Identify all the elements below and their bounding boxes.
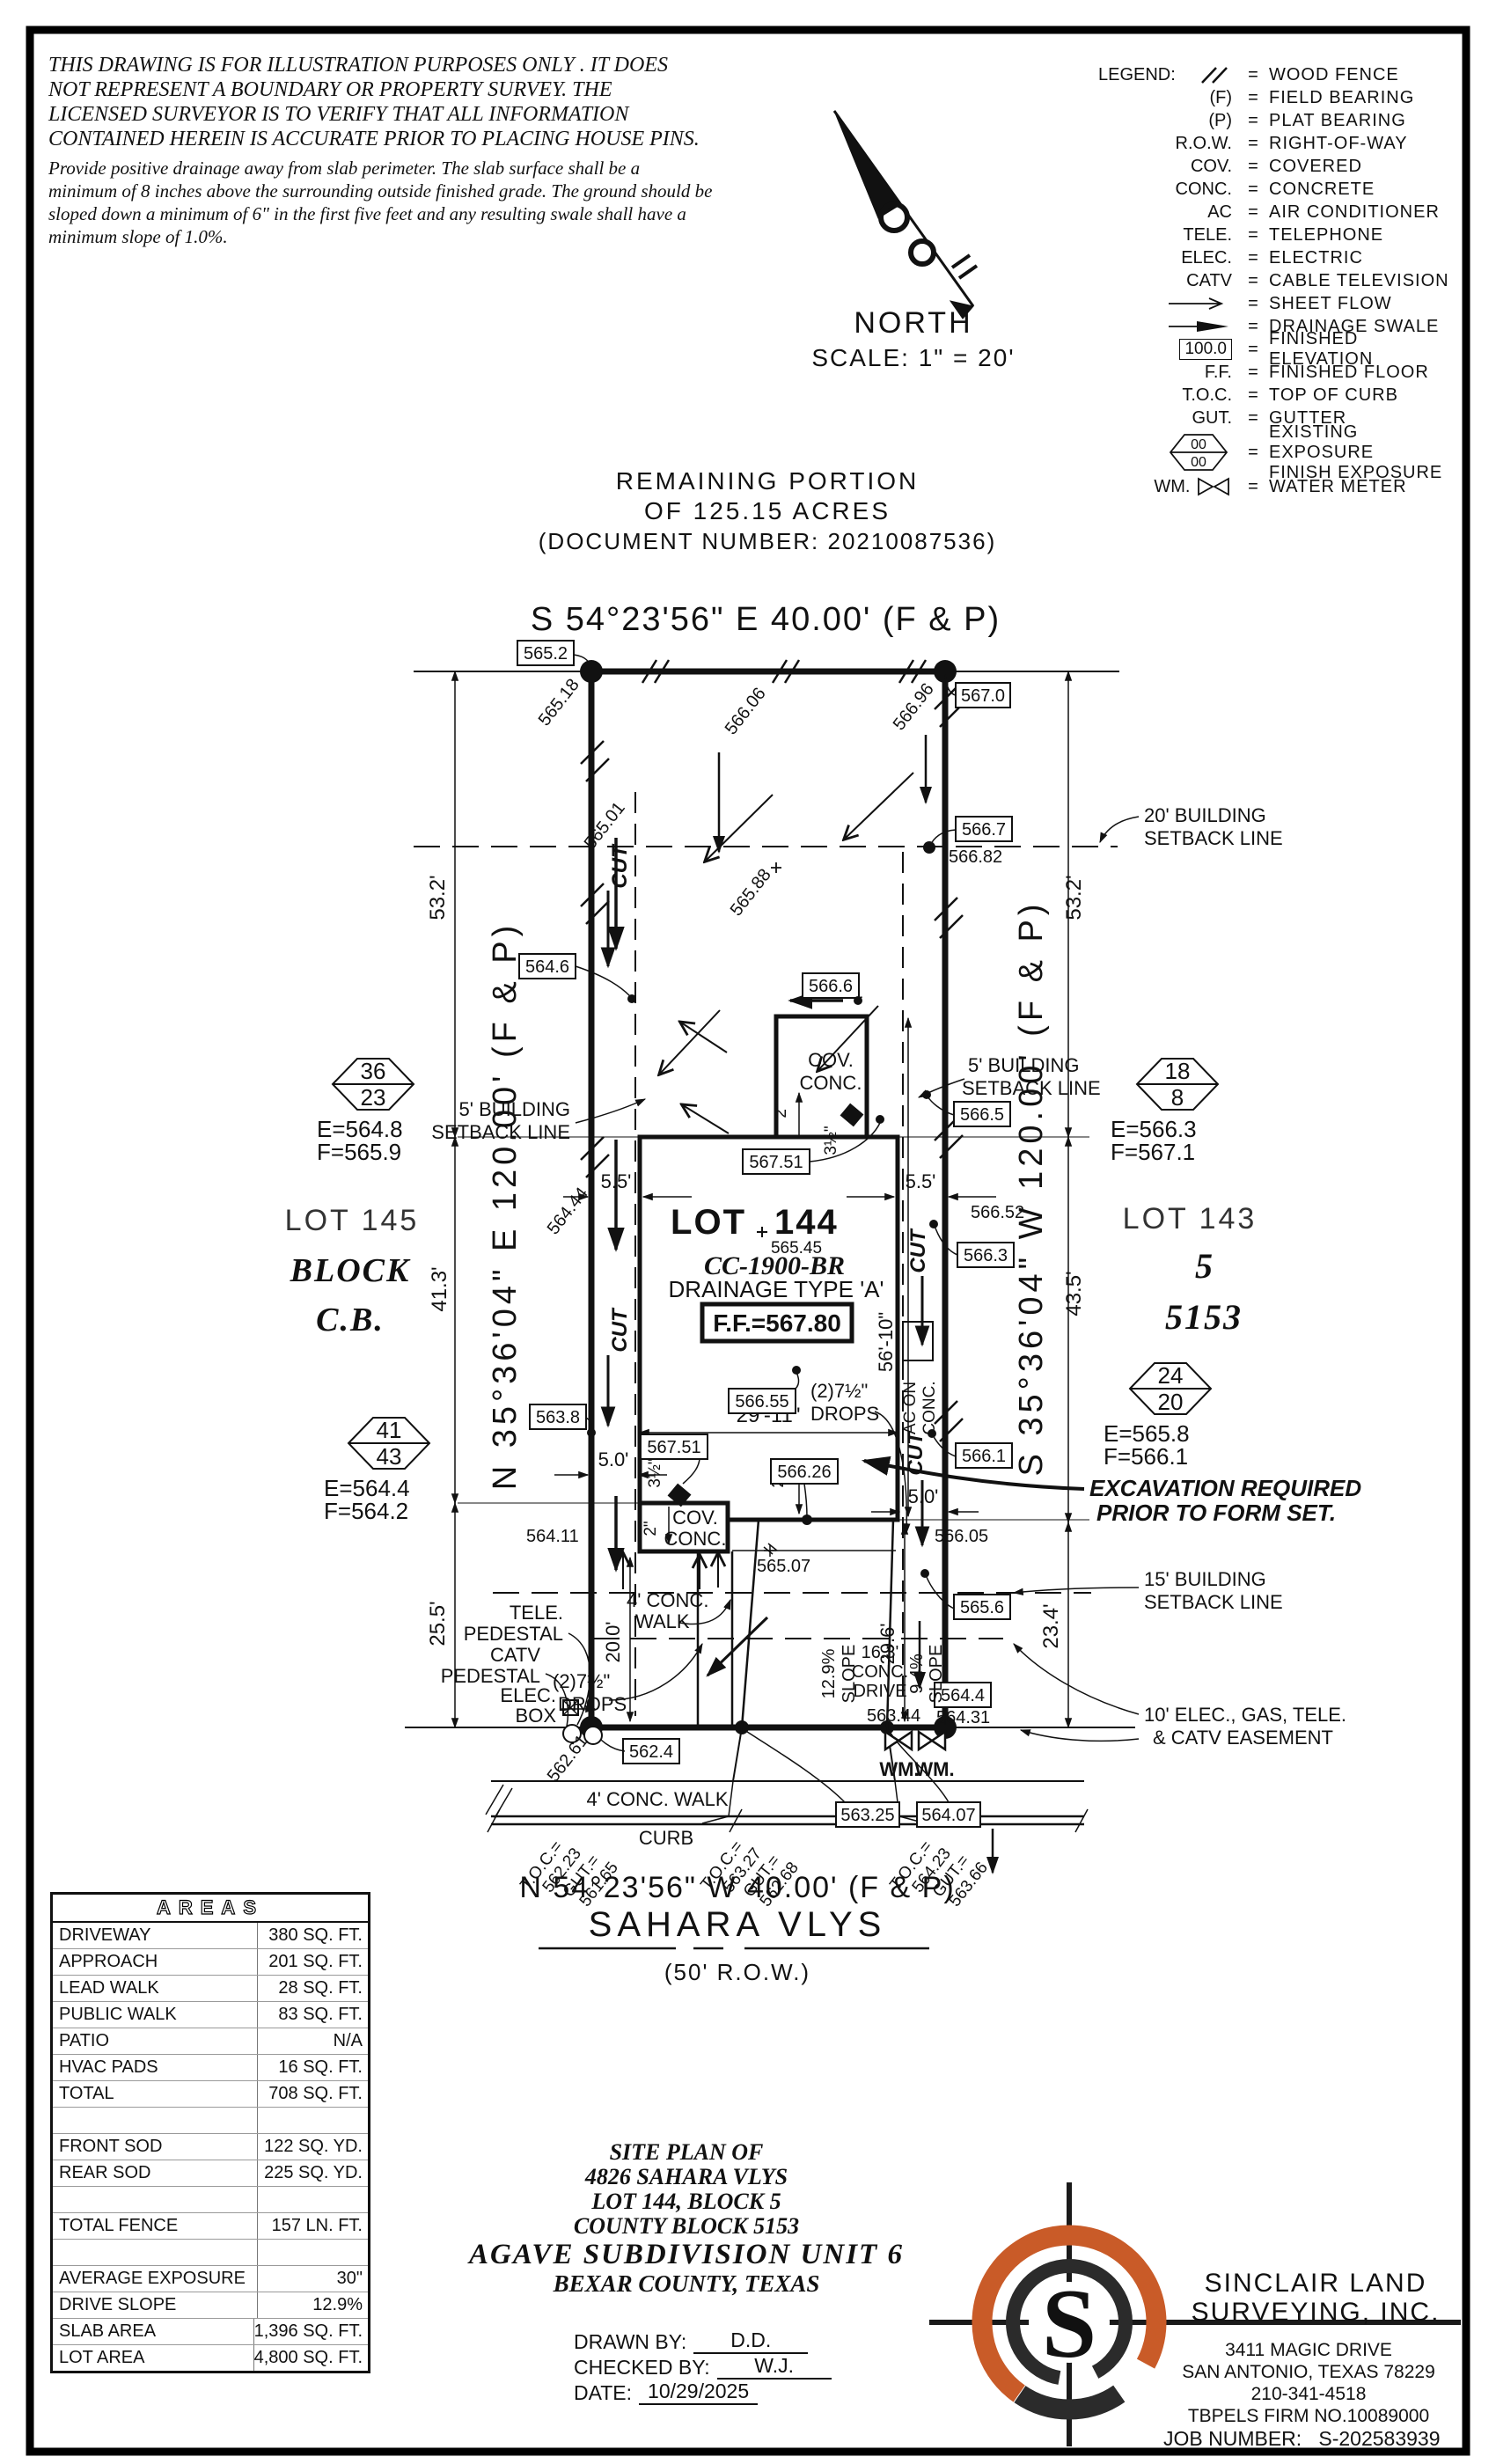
svg-text:5153: 5153 bbox=[1165, 1297, 1243, 1337]
svg-text:20: 20 bbox=[1158, 1389, 1184, 1415]
drainage-note-line: sloped down a minimum of 6" in the first… bbox=[48, 202, 761, 225]
svg-text:565.01: 565.01 bbox=[581, 798, 629, 853]
svg-text:00: 00 bbox=[1191, 455, 1206, 470]
water-meter-icon bbox=[1195, 477, 1232, 496]
svg-text:SLOPE: SLOPE bbox=[927, 1645, 946, 1704]
bearing-left: N 35°36'04" E 120.00' (F & P) bbox=[487, 921, 524, 1491]
county-line: BEXAR COUNTY, TEXAS bbox=[370, 2270, 1003, 2297]
svg-text:LOT: LOT bbox=[671, 1203, 746, 1242]
svg-text:(2)7½": (2)7½" bbox=[553, 1670, 610, 1692]
svg-text:SETBACK LINE: SETBACK LINE bbox=[1144, 1591, 1283, 1613]
areas-table-row: PUBLIC WALK 83 SQ. FT. bbox=[53, 2002, 368, 2028]
north-arrow-icon bbox=[834, 111, 977, 319]
areas-table-row: TOTAL FENCE 157 LN. FT. bbox=[53, 2213, 368, 2240]
date-label: DATE: bbox=[574, 2381, 632, 2405]
svg-text:F=564.2: F=564.2 bbox=[324, 1498, 408, 1524]
svg-text:565.88: 565.88 bbox=[727, 865, 775, 920]
svg-text:53.2': 53.2' bbox=[1062, 875, 1086, 920]
svg-text:564.07: 564.07 bbox=[921, 1806, 975, 1825]
firm-name: SINCLAIR LAND SURVEYING, INC. bbox=[1179, 2269, 1452, 2327]
svg-text:CUT: CUT bbox=[608, 1307, 632, 1353]
svg-text:567.51: 567.51 bbox=[647, 1438, 700, 1457]
svg-text:566.05: 566.05 bbox=[935, 1527, 988, 1546]
svg-text:00: 00 bbox=[1191, 437, 1206, 452]
svg-text:25.5': 25.5' bbox=[426, 1601, 450, 1646]
svg-text:& CATV EASEMENT: & CATV EASEMENT bbox=[1153, 1727, 1333, 1749]
areas-table-row: APPROACH 201 SQ. FT. bbox=[53, 1949, 368, 1976]
svg-text:566.26: 566.26 bbox=[777, 1463, 831, 1482]
checked-by-label: CHECKED BY: bbox=[574, 2356, 710, 2380]
svg-text:5.0': 5.0' bbox=[598, 1448, 629, 1470]
svg-text:ELEC.: ELEC. bbox=[500, 1684, 556, 1706]
svg-text:564.44: 564.44 bbox=[544, 1184, 592, 1238]
svg-text:565.2: 565.2 bbox=[524, 644, 568, 664]
drainage-note-line: Provide positive drainage away from slab… bbox=[48, 157, 761, 180]
svg-text:565.07: 565.07 bbox=[757, 1557, 810, 1576]
svg-text:16.3': 16.3' bbox=[862, 1643, 899, 1662]
svg-text:564.4: 564.4 bbox=[941, 1686, 985, 1705]
svg-text:566.96: 566.96 bbox=[890, 679, 938, 734]
excavation-note: EXCAVATION REQUIRED PRIOR TO FORM SET. bbox=[864, 1461, 1361, 1526]
disclaimer-line: LICENSED SURVEYOR IS TO VERIFY THAT ALL … bbox=[48, 102, 761, 127]
svg-text:AC ON: AC ON bbox=[901, 1382, 920, 1434]
title-line: 4826 SAHARA VLYS bbox=[370, 2165, 1003, 2189]
svg-text:10' ELEC., GAS, TELE.: 10' ELEC., GAS, TELE. bbox=[1144, 1704, 1346, 1726]
svg-text:WM.: WM. bbox=[879, 1758, 919, 1780]
svg-text:LOT 143: LOT 143 bbox=[1123, 1202, 1258, 1236]
areas-table-row: AVERAGE EXPOSURE 30" bbox=[53, 2266, 368, 2292]
areas-table-title: AREAS bbox=[53, 1895, 368, 1923]
svg-text:CONC.: CONC. bbox=[800, 1072, 862, 1094]
svg-text:PEDESTAL: PEDESTAL bbox=[464, 1623, 563, 1645]
legend: LEGEND: = WOOD FENCE (F)=FIELD BEARING (… bbox=[1098, 63, 1468, 498]
svg-text:4' CONC. WALK: 4' CONC. WALK bbox=[586, 1788, 728, 1810]
checked-by-value: W.J. bbox=[717, 2354, 832, 2380]
bearing-right: S 35°36'04" W 120.00' (F & P) bbox=[1013, 900, 1050, 1477]
svg-text:144: 144 bbox=[774, 1203, 839, 1242]
svg-text:565.6: 565.6 bbox=[960, 1598, 1004, 1617]
svg-text:SETBACK LINE: SETBACK LINE bbox=[962, 1077, 1101, 1099]
firm-city: SAN ANTONIO, TEXAS 78229 bbox=[1163, 2361, 1454, 2383]
svg-text:5' BUILDING: 5' BUILDING bbox=[968, 1054, 1079, 1076]
svg-text:566.5: 566.5 bbox=[960, 1105, 1004, 1125]
svg-text:DRIVE: DRIVE bbox=[853, 1682, 906, 1701]
svg-text:LOT 145: LOT 145 bbox=[285, 1204, 420, 1237]
areas-table-row: HVAC PADS 16 SQ. FT. bbox=[53, 2055, 368, 2081]
job-number: JOB NUMBER: S-202583939 bbox=[1163, 2427, 1463, 2451]
svg-text:COV.: COV. bbox=[672, 1507, 718, 1529]
remaining-portion-line1: REMAINING PORTION bbox=[616, 467, 920, 495]
svg-text:563.25: 563.25 bbox=[840, 1806, 894, 1825]
title-line: COUNTY BLOCK 5153 bbox=[370, 2214, 1003, 2239]
svg-text:3½": 3½" bbox=[822, 1126, 840, 1155]
areas-table-row: TOTAL 708 SQ. FT. bbox=[53, 2081, 368, 2108]
lot-144-labels: LOT 144 565.45 CC-1900-BR DRAINAGE TYPE … bbox=[669, 1203, 884, 1302]
svg-text:F.F.=567.80: F.F.=567.80 bbox=[713, 1309, 841, 1337]
svg-text:5.5': 5.5' bbox=[906, 1170, 936, 1192]
svg-text:564.6: 564.6 bbox=[525, 957, 569, 977]
svg-text:CATV: CATV bbox=[490, 1644, 540, 1666]
svg-text:CONC.: CONC. bbox=[920, 1381, 939, 1434]
finished-floor-box: F.F.=567.80 bbox=[702, 1304, 852, 1341]
firm-street: 3411 MAGIC DRIVE bbox=[1163, 2339, 1454, 2361]
svg-text:BLOCK: BLOCK bbox=[290, 1252, 411, 1289]
street-name: SAHARA VLYS bbox=[589, 1905, 887, 1944]
date-value: 10/29/2025 bbox=[639, 2380, 758, 2405]
title-line: LOT 144, BLOCK 5 bbox=[370, 2189, 1003, 2214]
svg-text:20' BUILDING: 20' BUILDING bbox=[1144, 804, 1266, 826]
svg-text:562.4: 562.4 bbox=[629, 1742, 673, 1762]
svg-text:566.7: 566.7 bbox=[962, 820, 1006, 840]
svg-text:SETBACK LINE: SETBACK LINE bbox=[431, 1121, 570, 1143]
svg-text:BOX: BOX bbox=[516, 1705, 557, 1727]
scale-label: SCALE: 1" = 20' bbox=[811, 344, 1015, 371]
svg-text:2": 2" bbox=[642, 1521, 660, 1536]
svg-text:4' CONC.: 4' CONC. bbox=[627, 1589, 708, 1611]
logo-letter: S bbox=[1042, 2270, 1096, 2379]
svg-text:8: 8 bbox=[1171, 1084, 1184, 1111]
svg-text:(2)7½": (2)7½" bbox=[810, 1380, 868, 1402]
exposure-hexagon-icon: 00 00 bbox=[1165, 429, 1232, 475]
areas-table-row: REAR SOD 225 SQ. YD. bbox=[53, 2160, 368, 2187]
subdivision-title: AGAVE SUBDIVISION UNIT 6 bbox=[370, 2239, 1003, 2270]
drainage-swale-icon bbox=[1167, 319, 1232, 334]
title-block: SITE PLAN OF 4826 SAHARA VLYS LOT 144, B… bbox=[370, 2140, 1003, 2297]
svg-text:EXCAVATION REQUIRED: EXCAVATION REQUIRED bbox=[1089, 1475, 1361, 1501]
areas-table-row: SLAB AREA 1,396 SQ. FT. bbox=[53, 2319, 368, 2345]
svg-text:20.0': 20.0' bbox=[602, 1621, 624, 1662]
legend-title: LEGEND: bbox=[1098, 65, 1183, 85]
disclaimer-line: NOT REPRESENT A BOUNDARY OR PROPERTY SUR… bbox=[48, 77, 761, 102]
svg-text:CUT: CUT bbox=[906, 1228, 930, 1273]
areas-table-row: DRIVE SLOPE 12.9% bbox=[53, 2292, 368, 2319]
firm-name-line1: SINCLAIR LAND bbox=[1179, 2269, 1452, 2298]
svg-text:18: 18 bbox=[1165, 1058, 1191, 1084]
areas-table-row: PATIO N/A bbox=[53, 2028, 368, 2055]
svg-text:CONC.: CONC. bbox=[664, 1528, 727, 1550]
drainage-note-line: minimum of 8 inches above the surroundin… bbox=[48, 180, 761, 202]
areas-table-row: LEAD WALK 28 SQ. FT. bbox=[53, 1976, 368, 2002]
svg-text:12.9%: 12.9% bbox=[819, 1648, 839, 1698]
svg-text:53.2': 53.2' bbox=[426, 875, 450, 920]
firm-name-line2: SURVEYING, INC. bbox=[1179, 2298, 1452, 2327]
sheet-flow-icon bbox=[1167, 297, 1232, 311]
svg-text:567.51: 567.51 bbox=[749, 1153, 803, 1172]
svg-text:565.18: 565.18 bbox=[535, 675, 583, 730]
areas-table-row bbox=[53, 2240, 368, 2266]
document-number: (DOCUMENT NUMBER: 20210087536) bbox=[539, 528, 996, 554]
svg-text:WM.: WM. bbox=[914, 1758, 954, 1780]
lot-145-labels: LOT 145 BLOCK C.B. bbox=[285, 1204, 420, 1338]
svg-text:5: 5 bbox=[1195, 1246, 1213, 1286]
drawn-by-label: DRAWN BY: bbox=[574, 2330, 686, 2354]
north-label: NORTH bbox=[854, 306, 972, 340]
svg-text:43.5': 43.5' bbox=[1062, 1271, 1086, 1316]
svg-text:43: 43 bbox=[377, 1443, 402, 1470]
svg-text:DROPS: DROPS bbox=[810, 1403, 879, 1425]
areas-table-row bbox=[53, 2108, 368, 2134]
areas-table-row bbox=[53, 2187, 368, 2213]
svg-text:566.1: 566.1 bbox=[962, 1447, 1006, 1466]
leader-lines bbox=[574, 655, 957, 1802]
areas-table-row: LOT AREA 4,800 SQ. FT. bbox=[53, 2345, 368, 2371]
svg-text:DRAINAGE TYPE 'A': DRAINAGE TYPE 'A' bbox=[669, 1276, 884, 1302]
signoff-block: DRAWN BY: D.D. CHECKED BY: W.J. DATE: 10… bbox=[574, 2328, 891, 2405]
areas-table: AREAS DRIVEWAY 380 SQ. FT. APPROACH 201 … bbox=[50, 1892, 370, 2373]
svg-text:566.55: 566.55 bbox=[735, 1392, 788, 1412]
svg-text:2": 2" bbox=[772, 1103, 790, 1118]
firm-license: TBPELS FIRM NO.10089000 bbox=[1163, 2405, 1454, 2427]
bearing-top: S 54°23'56" E 40.00' (F & P) bbox=[531, 601, 1001, 638]
disclaimer-line: CONTAINED HEREIN IS ACCURATE PRIOR TO PL… bbox=[48, 127, 761, 151]
site-plan-sheet: NORTH SCALE: 1" = 20' REMAINING PORTION … bbox=[0, 0, 1496, 2464]
disclaimer-line: THIS DRAWING IS FOR ILLUSTRATION PURPOSE… bbox=[48, 53, 761, 77]
svg-text:PRIOR TO FORM SET.: PRIOR TO FORM SET. bbox=[1096, 1500, 1336, 1526]
svg-text:CUT: CUT bbox=[608, 843, 632, 889]
svg-text:566.52: 566.52 bbox=[971, 1203, 1024, 1222]
wood-fence-icon bbox=[1197, 65, 1232, 84]
sheet-flow-arrows bbox=[623, 773, 913, 1589]
lot-143-labels: LOT 143 5 5153 bbox=[1123, 1202, 1258, 1337]
row-label: (50' R.O.W.) bbox=[664, 1959, 810, 1985]
drainage-note-line: minimum slope of 1.0%. bbox=[48, 225, 761, 248]
svg-text:WALK: WALK bbox=[635, 1610, 690, 1632]
svg-text:5' BUILDING: 5' BUILDING bbox=[459, 1098, 570, 1120]
svg-text:3½": 3½" bbox=[646, 1458, 664, 1487]
areas-table-row: DRIVEWAY 380 SQ. FT. bbox=[53, 1923, 368, 1949]
svg-text:F=565.9: F=565.9 bbox=[317, 1139, 401, 1165]
svg-text:566.82: 566.82 bbox=[949, 847, 1002, 867]
svg-text:41.3': 41.3' bbox=[428, 1266, 451, 1311]
public-walk-curb bbox=[486, 1781, 1088, 1832]
svg-text:567.0: 567.0 bbox=[961, 686, 1005, 706]
svg-text:COV.: COV. bbox=[808, 1049, 854, 1071]
svg-text:566.6: 566.6 bbox=[809, 977, 853, 996]
svg-text:24: 24 bbox=[1158, 1362, 1184, 1389]
svg-text:566.3: 566.3 bbox=[964, 1246, 1008, 1265]
disclaimer-block: THIS DRAWING IS FOR ILLUSTRATION PURPOSE… bbox=[48, 53, 761, 248]
svg-text:563.8: 563.8 bbox=[536, 1408, 580, 1427]
firm-phone: 210-341-4518 bbox=[1163, 2383, 1454, 2405]
svg-text:23.4': 23.4' bbox=[1039, 1603, 1063, 1648]
svg-text:56'-10": 56'-10" bbox=[875, 1312, 897, 1372]
svg-text:563.44: 563.44 bbox=[867, 1706, 920, 1726]
title-line: SITE PLAN OF bbox=[370, 2140, 1003, 2165]
boundary-corner-dots bbox=[580, 660, 957, 1739]
svg-text:CURB: CURB bbox=[639, 1827, 693, 1849]
job-number-label: JOB NUMBER: bbox=[1163, 2427, 1302, 2450]
svg-text:23: 23 bbox=[361, 1084, 386, 1111]
svg-text:566.06: 566.06 bbox=[722, 684, 770, 738]
firm-address: 3411 MAGIC DRIVE SAN ANTONIO, TEXAS 7822… bbox=[1163, 2339, 1454, 2427]
svg-text:F=567.1: F=567.1 bbox=[1111, 1139, 1195, 1165]
svg-text:CONC.: CONC. bbox=[852, 1662, 908, 1682]
ac-pad bbox=[903, 1322, 933, 1360]
svg-text:TELE.: TELE. bbox=[510, 1602, 563, 1624]
svg-text:41: 41 bbox=[377, 1417, 402, 1443]
svg-text:SETBACK LINE: SETBACK LINE bbox=[1144, 827, 1283, 849]
areas-table-row: FRONT SOD 122 SQ. YD. bbox=[53, 2134, 368, 2160]
svg-text:F=566.1: F=566.1 bbox=[1104, 1443, 1188, 1470]
svg-text:36: 36 bbox=[361, 1058, 386, 1084]
drawn-by-value: D.D. bbox=[693, 2328, 808, 2354]
bearing-bottom: N 54°23'56" W 40.00' (F & P) bbox=[519, 1871, 955, 1904]
svg-text:15' BUILDING: 15' BUILDING bbox=[1144, 1568, 1266, 1590]
svg-text:C.B.: C.B. bbox=[316, 1302, 385, 1338]
job-number-value: S-202583939 bbox=[1318, 2427, 1440, 2450]
svg-text:564.11: 564.11 bbox=[526, 1527, 579, 1546]
svg-text:564.31: 564.31 bbox=[936, 1708, 990, 1727]
svg-text:9.4%: 9.4% bbox=[907, 1654, 927, 1694]
remaining-portion-line2: OF 125.15 ACRES bbox=[644, 497, 891, 524]
finished-elevation-icon: 100.0 bbox=[1179, 339, 1232, 360]
